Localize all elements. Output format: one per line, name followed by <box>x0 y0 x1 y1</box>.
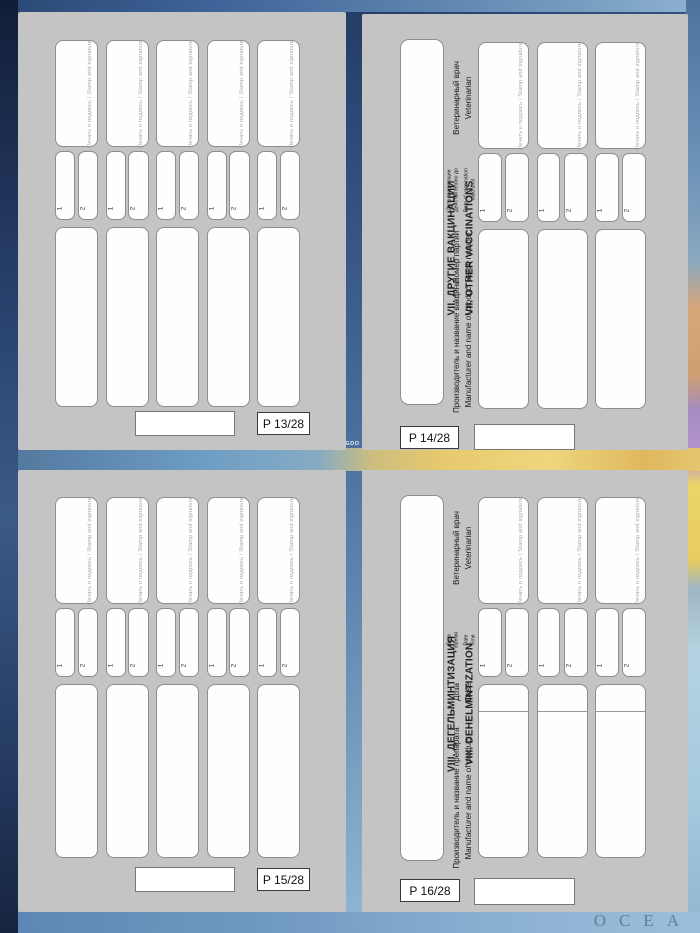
stamp-watermark-label: Печать и подпись / Stamp and signature <box>87 40 93 148</box>
section-title-box: VIII. ДЕГЕЛЬМИНТИЗАЦИЯ VIII. DEHELMINTIZ… <box>400 495 444 861</box>
record-column: Печать и подпись / Stamp and signature 1… <box>106 497 149 858</box>
date-field-2: 2 <box>78 608 98 677</box>
date-fields-row: 1 2 <box>478 153 529 222</box>
product-entry-field <box>537 229 588 409</box>
manufacturer-column-header: Производитель и название вакцины Manufac… <box>451 279 475 413</box>
page-number-badge: P 14/28 <box>400 426 459 449</box>
stamp-signature-field: Печать и подпись / Stamp and signature <box>156 40 199 147</box>
stamp-watermark-label: Печать и подпись / Stamp and signature <box>239 497 245 605</box>
date-fields-row: 1 2 <box>537 608 588 677</box>
product-entry-field <box>257 227 300 407</box>
record-column: Печать и подпись / Stamp and signature 1… <box>478 42 529 409</box>
date-fields-row: 1 2 <box>257 608 300 677</box>
field-number-label: 2 <box>565 209 572 213</box>
date-fields-row: 1 2 <box>478 608 529 677</box>
page-number-badge: P 13/28 <box>257 412 310 435</box>
batch-number-column-header: Номер партии Batch number <box>451 231 475 284</box>
stamp-watermark-label: Печать и подпись / Stamp and signature <box>87 497 93 605</box>
stamp-watermark-label: Печать и подпись / Stamp and signature <box>518 497 524 605</box>
stamp-signature-field: Печать и подпись / Stamp and signature <box>207 40 250 147</box>
field-number-label: 1 <box>107 664 114 668</box>
date-field-1: 1 <box>55 151 75 220</box>
field-number-label: 2 <box>180 207 187 211</box>
product-entry-field <box>207 684 250 858</box>
stamp-signature-field: Печать и подпись / Stamp and signature <box>106 497 149 604</box>
field-number-label: 1 <box>258 207 265 211</box>
date-field-2: 2 <box>280 151 300 220</box>
product-entry-field <box>595 684 646 858</box>
field-number-label: 1 <box>538 664 545 668</box>
passport-page-13: Печать и подпись / Stamp and signature 1… <box>18 12 346 450</box>
date-field-1: 1 <box>257 608 277 677</box>
date-field-2: 2 <box>229 608 249 677</box>
date-fields-row: 1 2 <box>106 151 149 220</box>
stamp-watermark-label: Печать и подпись / Stamp and signature <box>635 497 641 605</box>
stamp-signature-field: Печать и подпись / Stamp and signature <box>537 497 588 604</box>
product-entry-field <box>156 227 199 407</box>
stamp-watermark-label: Печать и подпись / Stamp and signature <box>577 42 583 150</box>
stamp-signature-field: Печать и подпись / Stamp and signature <box>478 42 529 149</box>
stamp-signature-field: Печать и подпись / Stamp and signature <box>106 40 149 147</box>
record-column: Печать и подпись / Stamp and signature 1… <box>595 42 646 409</box>
date-field-1: 1 <box>207 608 227 677</box>
field-number-label: 1 <box>56 664 63 668</box>
field-number-label: 2 <box>231 664 238 668</box>
date-field-2: 2 <box>78 151 98 220</box>
product-entry-field <box>55 684 98 858</box>
stamp-watermark-label: Печать и подпись / Stamp and signature <box>239 40 245 148</box>
field-number-label: 2 <box>130 664 137 668</box>
date-fields-row: 1 2 <box>55 151 98 220</box>
field-number-label: 2 <box>565 664 572 668</box>
field-number-label: 1 <box>208 207 215 211</box>
stamp-signature-field: Печать и подпись / Stamp and signature <box>595 497 646 604</box>
field-number-label: 2 <box>231 207 238 211</box>
stamp-watermark-label: Печать и подпись / Stamp and signature <box>635 42 641 150</box>
product-entry-field <box>106 227 149 407</box>
date-field-1: 1 <box>537 153 561 222</box>
passport-page-15: Печать и подпись / Stamp and signature 1… <box>18 470 346 912</box>
stamp-signature-field: Печать и подпись / Stamp and signature <box>55 497 98 604</box>
map-left-edge <box>0 0 18 933</box>
stamp-watermark-label: Печать и подпись / Stamp and signature <box>188 40 194 148</box>
record-column: Печать и подпись / Stamp and signature 1… <box>156 40 199 407</box>
field-number-label: 2 <box>506 209 513 213</box>
record-column: Печать и подпись / Stamp and signature 1… <box>478 497 529 858</box>
date-field-1: 1 <box>537 608 561 677</box>
field-number-label: 1 <box>107 207 114 211</box>
stamp-signature-field: Печать и подпись / Stamp and signature <box>156 497 199 604</box>
date-field-2: 2 <box>128 608 148 677</box>
date-fields-row: 1 2 <box>207 151 250 220</box>
section-title-box: VII. ДРУГИЕ ВАКЦИНАЦИИ VII. OTHER VACCIN… <box>400 39 444 405</box>
product-entry-field <box>207 227 250 407</box>
date-field-1: 1 <box>478 608 502 677</box>
record-column: Печать и подпись / Stamp and signature 1… <box>537 497 588 858</box>
date-field-1: 1 <box>595 153 619 222</box>
field-number-label: 1 <box>479 209 486 213</box>
map-top-edge <box>18 0 700 12</box>
records-grid: Печать и подпись / Stamp and signature 1… <box>55 497 300 858</box>
date-field-2: 2 <box>622 153 646 222</box>
record-column: Печать и подпись / Stamp and signature 1… <box>106 40 149 407</box>
date-field-2: 2 <box>280 608 300 677</box>
field-number-label: 1 <box>208 664 215 668</box>
record-column: Печать и подпись / Stamp and signature 1… <box>156 497 199 858</box>
veterinarian-column-header: Ветеринарный врач Veterinarian <box>451 511 475 585</box>
bottom-note-box <box>135 867 235 892</box>
field-number-label: 2 <box>623 209 630 213</box>
page-number-badge: P 16/28 <box>400 879 460 902</box>
stamp-watermark-label: Печать и подпись / Stamp and signature <box>577 497 583 605</box>
date-fields-row: 1 2 <box>595 153 646 222</box>
stamp-watermark-label: Печать и подпись / Stamp and signature <box>138 497 144 605</box>
record-column: Печать и подпись / Stamp and signature 1… <box>537 42 588 409</box>
record-column: Печать и подпись / Stamp and signature 1… <box>595 497 646 858</box>
product-entry-field <box>478 684 529 858</box>
date-column-header: Дата вакцинации Действительно до Date of… <box>446 168 477 212</box>
record-column: Печать и подпись / Stamp and signature 1… <box>55 497 98 858</box>
stamp-signature-field: Печать и подпись / Stamp and signature <box>257 497 300 604</box>
map-horizontal-gap <box>18 448 700 471</box>
date-field-2: 2 <box>229 151 249 220</box>
date-field-1: 1 <box>55 608 75 677</box>
stamp-watermark-label: Печать и подпись / Stamp and signature <box>518 42 524 150</box>
field-number-label: 1 <box>479 664 486 668</box>
field-number-label: 2 <box>281 207 288 211</box>
field-number-label: 1 <box>596 664 603 668</box>
stamp-signature-field: Печать и подпись / Stamp and signature <box>55 40 98 147</box>
record-column: Печать и подпись / Stamp and signature 1… <box>55 40 98 407</box>
dose-column-header: Доза Dose <box>451 683 475 702</box>
product-entry-field <box>156 684 199 858</box>
date-field-2: 2 <box>622 608 646 677</box>
date-field-2: 2 <box>505 153 529 222</box>
field-number-label: 1 <box>258 664 265 668</box>
stamp-signature-field: Печать и подпись / Stamp and signature <box>537 42 588 149</box>
date-field-2: 2 <box>564 153 588 222</box>
date-field-1: 1 <box>595 608 619 677</box>
bottom-note-box <box>474 424 575 450</box>
stamp-signature-field: Печать и подпись / Stamp and signature <box>207 497 250 604</box>
date-field-1: 1 <box>106 151 126 220</box>
record-column: Печать и подпись / Stamp and signature 1… <box>257 40 300 407</box>
date-fields-row: 1 2 <box>207 608 250 677</box>
stamp-signature-field: Печать и подпись / Stamp and signature <box>595 42 646 149</box>
passport-page-16: VIII. ДЕГЕЛЬМИНТИЗАЦИЯ VIII. DEHELMINTIZ… <box>362 470 688 912</box>
page-number-badge: P 15/28 <box>257 868 310 891</box>
field-number-label: 2 <box>79 207 86 211</box>
record-column: Печать и подпись / Stamp and signature 1… <box>207 40 250 407</box>
date-field-2: 2 <box>179 608 199 677</box>
date-field-2: 2 <box>179 151 199 220</box>
product-entry-field <box>537 684 588 858</box>
stamp-signature-field: Печать и подпись / Stamp and signature <box>257 40 300 147</box>
product-entry-field <box>478 229 529 409</box>
stamp-signature-field: Печать и подпись / Stamp and signature <box>478 497 529 604</box>
date-field-2: 2 <box>505 608 529 677</box>
field-number-label: 2 <box>180 664 187 668</box>
date-field-1: 1 <box>156 151 176 220</box>
product-entry-field <box>55 227 98 407</box>
records-grid: Печать и подпись / Stamp and signature 1… <box>55 40 300 407</box>
field-number-label: 1 <box>56 207 63 211</box>
field-number-label: 2 <box>79 664 86 668</box>
date-fields-row: 1 2 <box>257 151 300 220</box>
product-entry-field <box>257 684 300 858</box>
field-number-label: 1 <box>157 664 164 668</box>
field-number-label: 2 <box>623 664 630 668</box>
date-fields-row: 1 2 <box>106 608 149 677</box>
ocean-map-label: OCEA <box>594 911 692 931</box>
date-field-2: 2 <box>128 151 148 220</box>
records-grid: Печать и подпись / Stamp and signature 1… <box>478 42 646 409</box>
date-field-1: 1 <box>207 151 227 220</box>
date-field-1: 1 <box>106 608 126 677</box>
field-number-label: 1 <box>596 209 603 213</box>
stamp-watermark-label: Печать и подпись / Stamp and signature <box>289 497 295 605</box>
date-field-1: 1 <box>257 151 277 220</box>
product-entry-field <box>106 684 149 858</box>
field-number-label: 2 <box>506 664 513 668</box>
field-number-label: 2 <box>130 207 137 211</box>
date-fields-row: 1 2 <box>156 608 199 677</box>
date-field-1: 1 <box>156 608 176 677</box>
bottom-note-box <box>474 878 575 905</box>
date-fields-row: 1 2 <box>55 608 98 677</box>
field-number-label: 1 <box>157 207 164 211</box>
date-field-1: 1 <box>478 153 502 222</box>
manufacturer-column-header: Производитель и название препарата Manuf… <box>451 727 475 868</box>
date-fields-row: 1 2 <box>537 153 588 222</box>
stamp-watermark-label: Печать и подпись / Stamp and signature <box>289 40 295 148</box>
record-column: Печать и подпись / Stamp and signature 1… <box>257 497 300 858</box>
bottom-note-box <box>135 411 235 436</box>
date-fields-row: 1 2 <box>156 151 199 220</box>
records-grid: Печать и подпись / Stamp and signature 1… <box>478 497 646 858</box>
stamp-watermark-label: Печать и подпись / Stamp and signature <box>138 40 144 148</box>
passport-page-14: VII. ДРУГИЕ ВАКЦИНАЦИИ VII. OTHER VACCIN… <box>362 14 688 450</box>
field-number-label: 2 <box>281 664 288 668</box>
date-time-column-header: Дата Время Date Time <box>446 632 477 648</box>
date-field-2: 2 <box>564 608 588 677</box>
stamp-watermark-label: Печать и подпись / Stamp and signature <box>188 497 194 605</box>
date-fields-row: 1 2 <box>595 608 646 677</box>
field-number-label: 1 <box>538 209 545 213</box>
record-column: Печать и подпись / Stamp and signature 1… <box>207 497 250 858</box>
veterinarian-column-header: Ветеринарный врач Veterinarian <box>451 61 475 135</box>
product-entry-field <box>595 229 646 409</box>
